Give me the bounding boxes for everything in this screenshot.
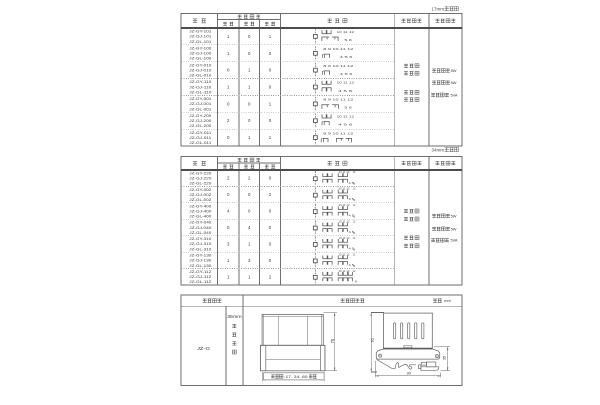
svg-text:JZ-GL-100: JZ-GL-100 [189, 56, 212, 61]
svg-text:17. 34. 60: 17. 34. 60 [286, 375, 308, 379]
svg-text:10 11 12: 10 11 12 [337, 30, 355, 34]
svg-text:12: 12 [353, 236, 356, 240]
svg-text:4 5 6: 4 5 6 [338, 89, 353, 93]
svg-text:JZ-GL-101: JZ-GL-101 [189, 39, 211, 44]
svg-text:JZ-GL-130: JZ-GL-130 [189, 263, 212, 268]
svg-text:12: 12 [353, 187, 356, 191]
svg-text:5W: 5W [451, 226, 457, 231]
svg-text:10 11 12: 10 11 12 [339, 252, 350, 256]
svg-text:JZ-GL-002: JZ-GL-002 [189, 197, 211, 202]
svg-text:12: 12 [353, 220, 356, 224]
svg-text:12: 12 [353, 252, 356, 256]
svg-text:JZ-GL-200: JZ-GL-200 [189, 123, 212, 128]
svg-text:5 6: 5 6 [344, 38, 352, 42]
svg-text:8 9 10 11 12: 8 9 10 11 12 [323, 131, 354, 135]
svg-text:10 11 12: 10 11 12 [337, 81, 355, 85]
svg-text:5VA: 5VA [450, 238, 457, 243]
svg-text:JZ-GL-001: JZ-GL-001 [189, 106, 211, 111]
svg-text:17mm: 17mm [431, 7, 444, 12]
svg-text:JZ-GL-220: JZ-GL-220 [189, 181, 212, 186]
svg-text:JZ-GL-010: JZ-GL-010 [189, 73, 212, 78]
svg-text:8 9 10 11 12: 8 9 10 11 12 [323, 98, 354, 102]
svg-text:5W: 5W [451, 213, 457, 218]
svg-text:10 11 12: 10 11 12 [339, 170, 350, 174]
svg-text:JZ-GL-310: JZ-GL-310 [189, 246, 212, 251]
svg-text:10 11 12: 10 11 12 [339, 187, 350, 191]
svg-text:12: 12 [353, 269, 356, 273]
svg-text:34mm: 34mm [431, 147, 444, 152]
svg-text:70: 70 [330, 338, 335, 343]
svg-text:10 11 12: 10 11 12 [339, 203, 350, 207]
svg-text:10 11 12: 10 11 12 [339, 236, 350, 240]
svg-text:8 9 10 11 12: 8 9 10 11 12 [323, 64, 354, 68]
svg-text:JZ-GL-011: JZ-GL-011 [189, 140, 211, 145]
svg-text:70: 70 [370, 338, 375, 343]
svg-text:12: 12 [353, 203, 356, 207]
svg-text:4 5 6: 4 5 6 [340, 72, 353, 76]
svg-text:5W: 5W [451, 68, 457, 73]
svg-text:5VA: 5VA [450, 92, 457, 97]
svg-text:10 11 12: 10 11 12 [339, 220, 350, 224]
svg-text:4 5 6: 4 5 6 [338, 123, 353, 127]
svg-text:4 5 6: 4 5 6 [340, 55, 353, 59]
svg-text:5 6: 5 6 [344, 106, 352, 110]
svg-text:JZ-GL-400: JZ-GL-400 [189, 214, 212, 219]
svg-text:90: 90 [407, 371, 411, 375]
svg-text:JZ-GL-112: JZ-GL-112 [189, 279, 211, 284]
svg-text:10 11 12: 10 11 12 [337, 114, 355, 118]
svg-text:JZ-GL-040: JZ-GL-040 [189, 230, 212, 235]
svg-text:mm: mm [444, 298, 451, 303]
svg-text:12: 12 [353, 170, 356, 174]
svg-text:8 9 10 11 12: 8 9 10 11 12 [323, 47, 354, 51]
svg-text:JZ-G: JZ-G [197, 346, 211, 351]
svg-text:35mm: 35mm [227, 314, 242, 319]
svg-text:5W: 5W [451, 80, 457, 85]
svg-text:JZ-GL-110: JZ-GL-110 [189, 89, 212, 94]
svg-text:35: 35 [442, 356, 446, 360]
